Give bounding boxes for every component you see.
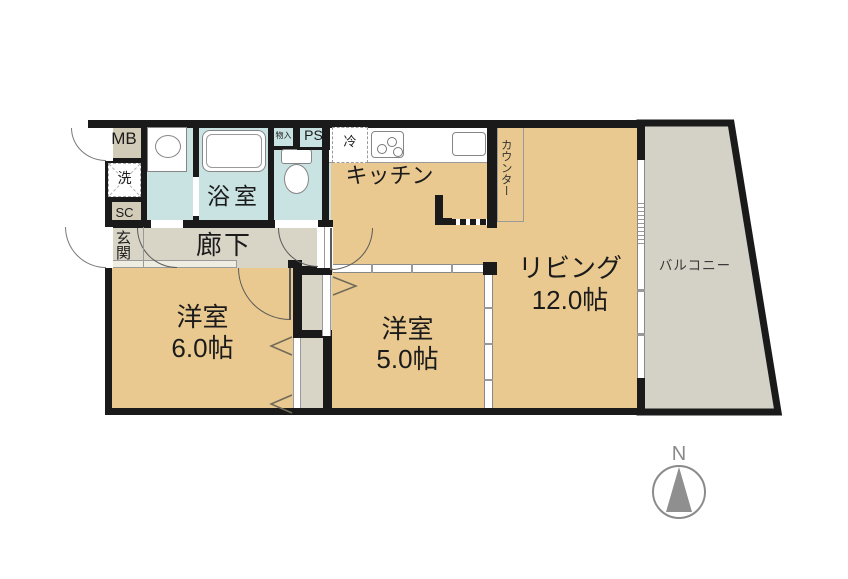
floor-plan: リビング 12.0帖 洋室 6.0帖 洋室 5.0帖 キッチン 廊下 浴室 玄関… xyxy=(0,0,848,579)
compass: N xyxy=(0,0,848,579)
north-label: N xyxy=(672,443,686,465)
